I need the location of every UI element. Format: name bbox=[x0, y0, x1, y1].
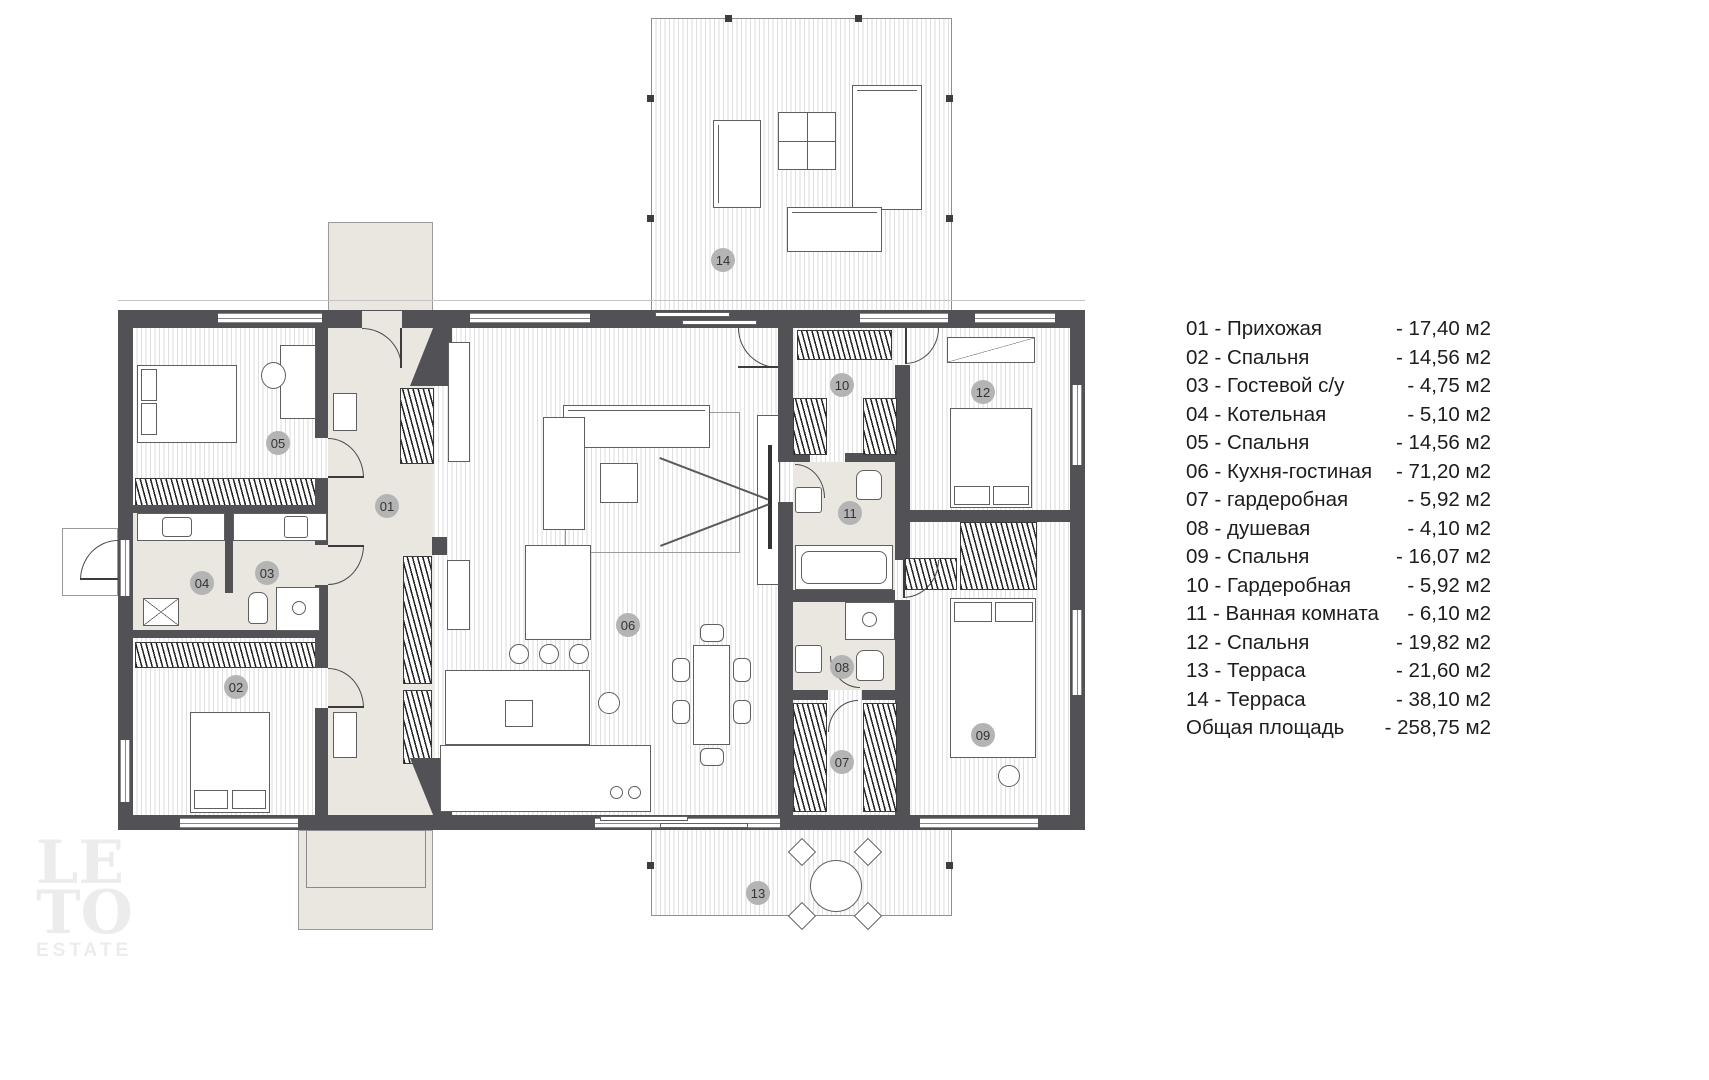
legend-room-area: - 19,82 м2 bbox=[1396, 631, 1491, 655]
legend-row: 13 - Терраса- 21,60 м2 bbox=[1186, 657, 1491, 686]
dining-chair bbox=[700, 624, 724, 642]
shoe-cabinet bbox=[333, 393, 357, 431]
legend-row: 05 - Спальня- 14,56 м2 bbox=[1186, 429, 1491, 458]
window bbox=[1072, 610, 1082, 695]
kitchen-counter-bottom bbox=[440, 745, 651, 812]
wardrobe-hatch-07 bbox=[863, 703, 897, 812]
legend-room-area: - 16,07 м2 bbox=[1396, 545, 1491, 569]
room-number: 14 bbox=[716, 253, 730, 268]
window bbox=[860, 313, 948, 323]
room-label-05: 05 bbox=[266, 431, 290, 455]
window bbox=[470, 313, 590, 323]
pillow bbox=[954, 486, 990, 505]
legend-room-label: 01 - Прихожая bbox=[1186, 317, 1322, 341]
tv bbox=[768, 445, 772, 549]
door-leaf bbox=[328, 706, 364, 708]
legend-room-area: - 4,75 м2 bbox=[1407, 374, 1491, 398]
legend-room-label: 11 - Ванная комната bbox=[1186, 602, 1379, 626]
eaves-line bbox=[118, 300, 1085, 301]
wall-int bbox=[895, 365, 910, 510]
legend-room-label: 08 - душевая bbox=[1186, 517, 1310, 541]
pouf-09 bbox=[998, 765, 1020, 787]
window bbox=[1072, 385, 1082, 465]
sink-04 bbox=[162, 517, 192, 537]
sofa-back-line bbox=[792, 212, 877, 213]
wall-int bbox=[133, 505, 328, 513]
terrace-post bbox=[725, 15, 732, 22]
wardrobe-hatch-05 bbox=[135, 478, 320, 506]
kitchen-island bbox=[525, 545, 591, 640]
pillow bbox=[232, 790, 266, 809]
terrace-post bbox=[946, 95, 953, 102]
porch-step bbox=[306, 830, 426, 888]
room-label-09: 09 bbox=[971, 723, 995, 747]
terrace-post bbox=[946, 862, 953, 869]
counter-03 bbox=[233, 513, 327, 541]
desk-05 bbox=[280, 345, 316, 419]
desk-chair-05 bbox=[261, 362, 286, 389]
wall-int bbox=[862, 690, 895, 700]
legend-room-label: 04 - Котельная bbox=[1186, 403, 1326, 427]
legend-room-label: 14 - Терраса bbox=[1186, 688, 1306, 712]
room-label-03: 03 bbox=[255, 561, 279, 585]
bar-stool bbox=[569, 644, 589, 664]
hall-closet-hatch bbox=[400, 388, 434, 464]
sink-03 bbox=[284, 516, 308, 538]
dining-table bbox=[693, 645, 730, 745]
shower-drain bbox=[292, 601, 306, 615]
dining-chair bbox=[733, 700, 751, 724]
wall-int bbox=[778, 502, 793, 815]
legend-room-label: 05 - Спальня bbox=[1186, 431, 1309, 455]
room-number: 04 bbox=[195, 576, 209, 591]
wardrobe-hatch-02 bbox=[135, 642, 320, 668]
room-label-08: 08 bbox=[830, 655, 854, 679]
pillow bbox=[141, 403, 157, 435]
legend-room-area: - 38,10 м2 bbox=[1396, 688, 1491, 712]
door-gap-boiler bbox=[120, 540, 130, 596]
terrace-post bbox=[647, 862, 654, 869]
cabinet bbox=[447, 560, 470, 630]
door-leaf bbox=[400, 328, 402, 368]
door-leaf bbox=[903, 560, 905, 598]
sofa-back-line bbox=[718, 125, 719, 203]
legend-room-area: - 5,92 м2 bbox=[1407, 488, 1491, 512]
room-number: 11 bbox=[843, 506, 857, 521]
window bbox=[180, 818, 298, 828]
legend-room-area: - 21,60 м2 bbox=[1396, 659, 1491, 683]
legend-room-area: - 5,92 м2 bbox=[1407, 574, 1491, 598]
pillow bbox=[194, 790, 228, 809]
wall-int bbox=[895, 600, 910, 815]
bathtub-inner bbox=[801, 551, 887, 584]
room-number: 10 bbox=[835, 378, 849, 393]
legend-row: 01 - Прихожая- 17,40 м2 bbox=[1186, 315, 1491, 344]
dining-chair bbox=[733, 658, 751, 682]
sofa-back-line bbox=[568, 410, 705, 411]
toilet-03 bbox=[248, 592, 268, 624]
legend-row: 08 - душевая- 4,10 м2 bbox=[1186, 515, 1491, 544]
legend-row: 03 - Гостевой с/у- 4,75 м2 bbox=[1186, 372, 1491, 401]
door-leaf bbox=[905, 328, 907, 364]
room-number: 13 bbox=[751, 886, 765, 901]
room-number: 02 bbox=[229, 680, 243, 695]
wall-int bbox=[315, 708, 328, 815]
legend-room-label: 02 - Спальня bbox=[1186, 346, 1309, 370]
room-label-04: 04 bbox=[190, 571, 214, 595]
legend-room-label: 13 - Терраса bbox=[1186, 659, 1306, 683]
media-wall bbox=[448, 342, 470, 462]
legend: 01 - Прихожая- 17,40 м2 02 - Спальня- 14… bbox=[1186, 315, 1491, 743]
dining-chair bbox=[672, 658, 690, 682]
legend-room-area: - 71,20 м2 bbox=[1396, 460, 1491, 484]
shower-head bbox=[862, 612, 877, 627]
bar-stool bbox=[539, 644, 559, 664]
closet-12 bbox=[947, 337, 1035, 363]
room-label-12: 12 bbox=[971, 380, 995, 404]
sliding-door-top bbox=[682, 320, 757, 325]
room-label-10: 10 bbox=[830, 373, 854, 397]
legend-room-label: 10 - Гардеробная bbox=[1186, 574, 1351, 598]
legend-row: 11 - Ванная комната- 6,10 м2 bbox=[1186, 600, 1491, 629]
legend-room-label: 07 - гардеробная bbox=[1186, 488, 1348, 512]
stove-burner bbox=[610, 786, 623, 799]
terrace-post bbox=[647, 95, 654, 102]
watermark-logo: LE TO ESTATE bbox=[36, 838, 133, 964]
room-label-07: 07 bbox=[830, 750, 854, 774]
legend-row-total: Общая площадь- 258,75 м2 bbox=[1186, 714, 1491, 743]
wall-int bbox=[133, 630, 328, 638]
legend-room-area: - 6,10 м2 bbox=[1407, 602, 1491, 626]
wall-int bbox=[225, 513, 233, 593]
entrance-door-gap bbox=[362, 311, 402, 328]
room-number: 05 bbox=[271, 436, 285, 451]
outdoor-sofa bbox=[852, 85, 922, 210]
legend-room-area: - 4,10 м2 bbox=[1407, 517, 1491, 541]
room-number: 12 bbox=[976, 385, 990, 400]
door-leaf bbox=[738, 366, 778, 368]
legend-row: 06 - Кухня-гостиная- 71,20 м2 bbox=[1186, 458, 1491, 487]
bar-stool bbox=[509, 644, 529, 664]
window bbox=[120, 740, 130, 802]
pillow bbox=[141, 369, 157, 401]
legend-room-label: 03 - Гостевой с/у bbox=[1186, 374, 1344, 398]
pillow bbox=[993, 486, 1029, 505]
legend-total-label: Общая площадь bbox=[1186, 716, 1344, 740]
pillow bbox=[954, 602, 992, 622]
wardrobe-hatch-10 bbox=[797, 330, 892, 360]
door-leaf bbox=[80, 578, 118, 580]
room-label-14: 14 bbox=[711, 248, 735, 272]
room-label-02: 02 bbox=[224, 675, 248, 699]
hall-closet-hatch bbox=[403, 690, 432, 764]
terrace-post bbox=[855, 15, 862, 22]
door-leaf bbox=[328, 476, 364, 478]
legend-room-area: - 5,10 м2 bbox=[1407, 403, 1491, 427]
dining-chair bbox=[700, 748, 724, 766]
coffee-table bbox=[600, 463, 638, 503]
toilet-08 bbox=[856, 650, 884, 681]
room-label-06: 06 bbox=[616, 613, 640, 637]
room-label-01: 01 bbox=[375, 494, 399, 518]
legend-row: 04 - Котельная- 5,10 м2 bbox=[1186, 401, 1491, 430]
sofa-chaise bbox=[543, 417, 585, 530]
room-number: 09 bbox=[976, 728, 990, 743]
window bbox=[218, 313, 322, 323]
washing-machine-04 bbox=[143, 598, 179, 626]
sofa-back-line bbox=[857, 90, 917, 91]
room-label-13: 13 bbox=[746, 881, 770, 905]
wall-int bbox=[903, 510, 1085, 522]
floor-plan-canvas: 01 02 03 04 05 06 07 08 09 10 11 12 13 1… bbox=[0, 0, 1709, 1080]
legend-room-label: 12 - Спальня bbox=[1186, 631, 1309, 655]
legend-room-area: - 14,56 м2 bbox=[1396, 431, 1491, 455]
legend-row: 14 - Терраса- 38,10 м2 bbox=[1186, 686, 1491, 715]
chair bbox=[598, 692, 620, 714]
legend-room-label: 06 - Кухня-гостиная bbox=[1186, 460, 1372, 484]
wall-int bbox=[432, 537, 447, 555]
toilet-11 bbox=[856, 470, 882, 500]
outdoor-round-table bbox=[810, 860, 862, 912]
wardrobe-hatch-10 bbox=[863, 398, 897, 455]
legend-row: 12 - Спальня- 19,82 м2 bbox=[1186, 629, 1491, 658]
sliding-door-bottom bbox=[660, 823, 748, 828]
watermark-line-2: TO bbox=[36, 888, 133, 938]
stove-burner bbox=[628, 786, 641, 799]
wall-int bbox=[793, 690, 828, 700]
legend-row: 09 - Спальня- 16,07 м2 bbox=[1186, 543, 1491, 572]
sink-08 bbox=[795, 645, 822, 673]
window bbox=[975, 313, 1055, 323]
legend-room-area: - 17,40 м2 bbox=[1396, 317, 1491, 341]
legend-room-area: - 14,56 м2 bbox=[1396, 346, 1491, 370]
wall-int bbox=[778, 328, 793, 462]
outdoor-sofa bbox=[787, 207, 882, 252]
shoe-cabinet bbox=[333, 712, 357, 758]
wardrobe-hatch-07 bbox=[793, 703, 827, 812]
legend-row: 10 - Гардеробная- 5,92 м2 bbox=[1186, 572, 1491, 601]
legend-row: 02 - Спальня- 14,56 м2 bbox=[1186, 344, 1491, 373]
sliding-door-bottom bbox=[600, 816, 688, 821]
wardrobe-hatch-10 bbox=[793, 398, 827, 455]
room-label-11: 11 bbox=[838, 501, 862, 525]
watermark-line-3: ESTATE bbox=[36, 938, 133, 964]
hall-closet-hatch bbox=[403, 556, 432, 684]
terrace-post bbox=[946, 215, 953, 222]
legend-total-area: - 258,75 м2 bbox=[1385, 716, 1491, 740]
wall-int bbox=[793, 590, 895, 602]
legend-room-label: 09 - Спальня bbox=[1186, 545, 1309, 569]
window bbox=[920, 818, 1038, 828]
outdoor-table bbox=[778, 112, 836, 170]
pillow bbox=[995, 602, 1033, 622]
outdoor-sofa bbox=[713, 120, 761, 208]
wall-int bbox=[315, 328, 328, 438]
sliding-door-top bbox=[655, 312, 730, 317]
room-number: 07 bbox=[835, 755, 849, 770]
room-number: 01 bbox=[380, 499, 394, 514]
kitchen-sink bbox=[505, 700, 533, 727]
terrace-post bbox=[647, 215, 654, 222]
room-number: 03 bbox=[260, 566, 274, 581]
wardrobe-hatch-12-09 bbox=[960, 522, 1037, 590]
legend-row: 07 - гардеробная- 5,92 м2 bbox=[1186, 486, 1491, 515]
room-number: 06 bbox=[621, 618, 635, 633]
sofa bbox=[563, 405, 710, 448]
door-leaf bbox=[328, 545, 364, 547]
dining-chair bbox=[672, 700, 690, 724]
room-number: 08 bbox=[835, 660, 849, 675]
